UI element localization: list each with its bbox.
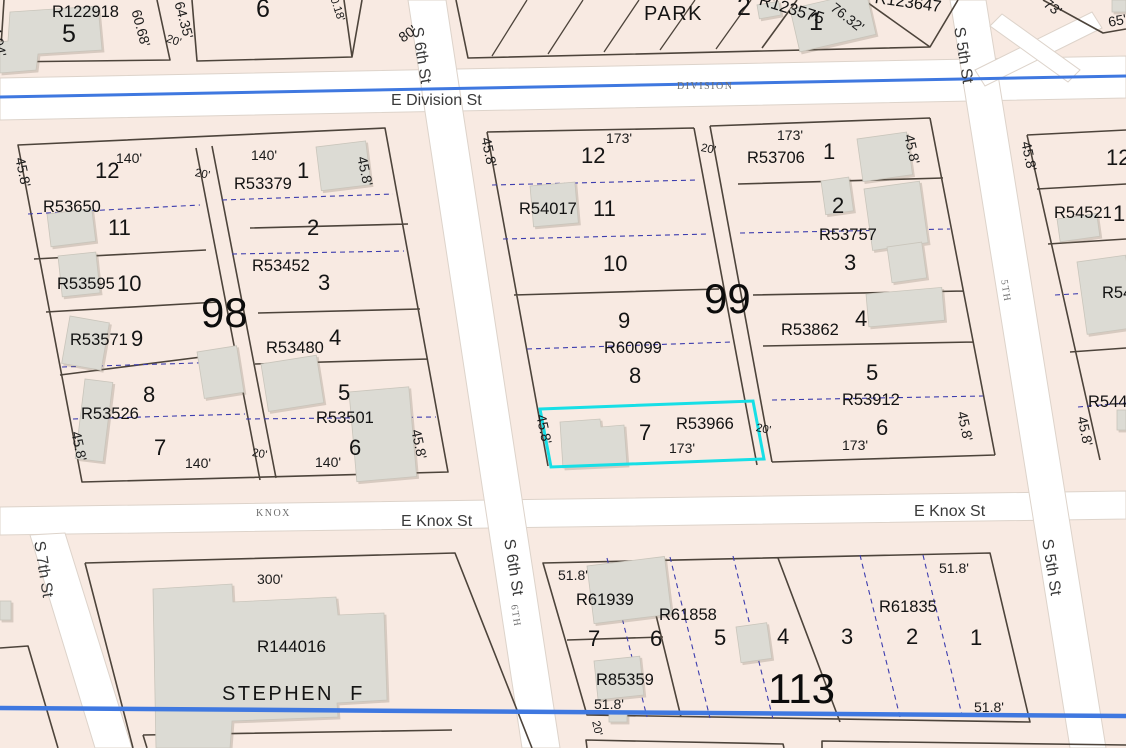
- parcel-ids-r53452-8: R53452: [252, 258, 310, 275]
- street-label-e-division-st: E Division St: [391, 93, 482, 109]
- street-label-s-7th-st: S 7th St: [30, 540, 55, 599]
- parcel-ids-r61835-24: R61835: [879, 599, 937, 616]
- lot-numbers-5-26: 5: [866, 362, 878, 384]
- dimensions-51-8-33: 51.8': [939, 561, 969, 575]
- street-label-s-6th-st-south: S 6th St: [500, 538, 525, 597]
- dimensions-0-18-4: 0.18': [327, 0, 346, 23]
- dimensions-20-16: 20': [251, 448, 268, 462]
- dimensions-140-12: 140': [251, 148, 277, 162]
- lot-numbers-5-0: 5: [62, 22, 76, 47]
- parcel-ids-r53526-6: R53526: [81, 406, 139, 423]
- lot-numbers-7-21: 7: [639, 422, 651, 444]
- street-label-e-knox-st-east: E Knox St: [914, 504, 985, 520]
- dimensions-45-8-9: 45.8': [13, 156, 33, 188]
- parcel-ids-r53480-9: R53480: [266, 340, 324, 357]
- lot-numbers-10-18: 10: [603, 253, 627, 275]
- parcel-ids-r61939-22: R61939: [576, 592, 634, 609]
- blocks-99-1: 99: [704, 278, 751, 320]
- map-labels-layer: E Division StE Knox StE Knox StS 6th StS…: [0, 0, 1126, 748]
- parcel-ids-r544-20: R544: [1088, 394, 1126, 411]
- lot-numbers-6-1: 6: [256, 0, 270, 22]
- dimensions-300-31: 300': [257, 572, 283, 586]
- dimensions-45-8-30: 45.8': [1075, 415, 1095, 447]
- dimensions-140-15: 140': [185, 456, 211, 470]
- parcel-ids-r53706-14: R53706: [747, 150, 805, 167]
- parcel-ids-r53379-7: R53379: [234, 176, 292, 193]
- lot-numbers-1-36: 1: [970, 627, 982, 649]
- parcel-ids-r53757-15: R53757: [819, 227, 877, 244]
- lot-numbers-12-28: 12: [1106, 147, 1126, 169]
- dimensions-173-27: 173': [842, 438, 868, 452]
- parcel-ids-r60099-12: R60099: [604, 340, 662, 357]
- lot-numbers-8-8: 8: [143, 384, 155, 406]
- places-stephen-f-1: STEPHEN F: [222, 684, 365, 704]
- lot-numbers-1-3: 1: [809, 10, 823, 35]
- lot-numbers-7-9: 7: [154, 437, 166, 459]
- lot-numbers-4-13: 4: [329, 327, 341, 349]
- street-minor-knox-1: KNOX: [256, 509, 291, 519]
- lot-numbers-4-25: 4: [855, 308, 867, 330]
- dimensions-60-68-1: 60.68': [129, 8, 152, 48]
- lot-numbers-3-12: 3: [318, 272, 330, 294]
- parcel-ids-r53862-16: R53862: [781, 322, 839, 339]
- lot-numbers-10-6: 10: [117, 273, 141, 295]
- parcel-ids-r122918-0: R122918: [52, 4, 119, 21]
- street-minor-division-0: DIVISION: [677, 82, 733, 92]
- dimensions-64-35-3: 64.35': [172, 0, 195, 40]
- dimensions-173-25: 173': [777, 128, 803, 142]
- dimensions-45-8-26: 45.8': [902, 133, 922, 165]
- dimensions-51-8-34: 51.8': [594, 697, 624, 711]
- blocks-98-0: 98: [201, 292, 248, 334]
- dimensions-45-8-29: 45.8': [1019, 140, 1039, 172]
- lot-numbers-2-2: 2: [737, 0, 751, 20]
- parcel-ids-r53571-5: R53571: [70, 332, 128, 349]
- parcel-ids-r53912-17: R53912: [842, 392, 900, 409]
- places-park-0: PARK: [644, 4, 703, 24]
- dimensions-73-7: 73': [1041, 0, 1064, 18]
- lot-numbers-2-23: 2: [832, 195, 844, 217]
- parcel-ids-r144016-21: R144016: [257, 638, 326, 655]
- dimensions-51-8-36: 51.8': [974, 700, 1004, 714]
- parcel-ids-r54521-18: R54521: [1054, 205, 1112, 222]
- dimensions-173-20: 173': [606, 131, 632, 145]
- dimensions-45-8-28: 45.8': [955, 410, 975, 442]
- dimensions-20-35: 20': [589, 720, 603, 737]
- dimensions-140-10: 140': [116, 151, 142, 165]
- dimensions-20-24: 20': [755, 423, 772, 437]
- dimensions-51-8-32: 51.8': [558, 568, 588, 582]
- dimensions-45-8-19: 45.8': [479, 136, 499, 168]
- parcel-ids-r54-19: R54: [1102, 285, 1126, 302]
- lot-numbers-6-15: 6: [349, 437, 361, 459]
- lot-numbers-12-16: 12: [581, 145, 605, 167]
- street-minor-6th-2: 6TH: [508, 604, 521, 628]
- dimensions-34-94-0: 34.94': [0, 18, 9, 58]
- parcel-ids-r53501-10: R53501: [316, 410, 374, 427]
- parcel-ids-r123647-2: R123647: [874, 0, 943, 16]
- lot-numbers-11-5: 11: [108, 217, 131, 239]
- lot-numbers-6-31: 6: [650, 628, 662, 650]
- lot-numbers-3-34: 3: [841, 626, 853, 648]
- lot-numbers-5-32: 5: [714, 627, 726, 649]
- dimensions-65-8: 65': [1107, 12, 1126, 29]
- lot-numbers-11-17: 11: [593, 198, 616, 220]
- parcel-ids-r54017-11: R54017: [519, 201, 577, 218]
- lot-numbers-1-29: 1: [1113, 203, 1125, 225]
- blocks-113-2: 113: [768, 668, 835, 710]
- lot-numbers-3-24: 3: [844, 252, 856, 274]
- dimensions-20-21: 20': [700, 143, 717, 157]
- lot-numbers-4-33: 4: [777, 626, 789, 648]
- dimensions-140-17: 140': [315, 455, 341, 469]
- lot-numbers-2-35: 2: [906, 626, 918, 648]
- dimensions-45-8-13: 45.8': [355, 155, 375, 187]
- parcel-ids-r53595-4: R53595: [57, 276, 115, 293]
- dimensions-45-8-22: 45.8': [534, 413, 554, 445]
- dimensions-45-8-18: 45.8': [409, 428, 429, 460]
- lot-numbers-7-30: 7: [588, 628, 600, 650]
- lot-numbers-5-14: 5: [338, 382, 350, 404]
- lot-numbers-8-20: 8: [629, 365, 641, 387]
- lot-numbers-9-7: 9: [131, 328, 143, 350]
- lot-numbers-1-22: 1: [823, 141, 835, 163]
- street-label-s-5th-st-south: S 5th St: [1038, 538, 1063, 597]
- lot-numbers-6-27: 6: [876, 417, 888, 439]
- parcel-ids-r53966-13: R53966: [676, 416, 734, 433]
- street-label-s-5th-st-north: S 5th St: [950, 26, 975, 85]
- lot-numbers-9-19: 9: [618, 310, 630, 332]
- dimensions-20-11: 20': [194, 168, 211, 182]
- dimensions-173-23: 173': [669, 441, 695, 455]
- parcel-ids-r53650-3: R53650: [43, 199, 101, 216]
- lot-numbers-2-11: 2: [307, 217, 319, 239]
- street-minor-5th-3: 5TH: [998, 279, 1011, 303]
- parcel-map: E Division StE Knox StE Knox StS 6th StS…: [0, 0, 1126, 748]
- parcel-ids-r61858-23: R61858: [659, 607, 717, 624]
- street-label-e-knox-st-west: E Knox St: [401, 514, 472, 530]
- lot-numbers-1-10: 1: [297, 160, 309, 182]
- parcel-ids-r85359-25: R85359: [596, 672, 654, 689]
- dimensions-76-32-6: 76.32': [828, 0, 866, 34]
- dimensions-45-8-14: 45.8': [69, 430, 89, 462]
